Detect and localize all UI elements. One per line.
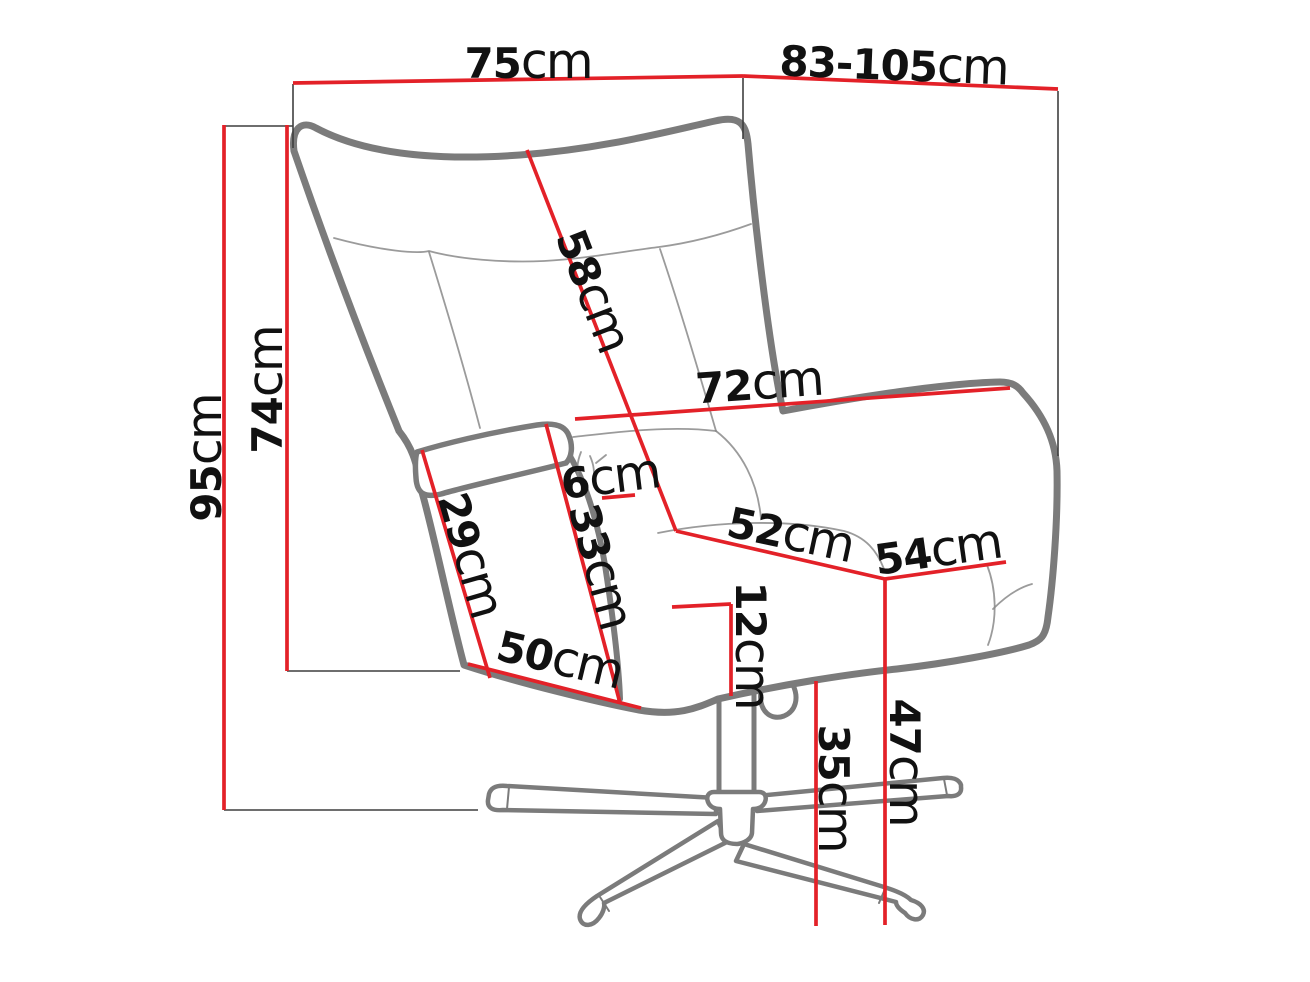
dim-value: 83-105 [779,36,938,91]
label-overall-height: 95cm [176,394,233,521]
base-post-fill [719,694,754,794]
dim-value: 12 [726,581,775,637]
dim-unit: cm [237,326,294,397]
dim-value: 72 [694,361,754,414]
label-back-height: 74cm [237,326,294,453]
armchair-dimension-diagram: 75cm 83-105cm 95cm 74cm 58cm 72cm 6cm 29… [0,0,1310,982]
dim-unit: cm [521,33,592,90]
label-seat-height: 47cm [878,698,935,825]
dim-unit: cm [936,37,1009,97]
dim-unit: cm [724,638,781,709]
dim-unit: cm [176,394,233,465]
label-underseat-height: 35cm [807,724,864,851]
dim-value: 47 [880,698,929,754]
dimension-diagram-page: 75cm 83-105cm 95cm 74cm 58cm 72cm 6cm 29… [0,0,1310,982]
label-depth-range: 83-105cm [778,30,1008,96]
dim-unit: cm [750,350,824,412]
dim-unit: cm [807,781,864,852]
dim-unit: cm [878,755,935,826]
dim-value: 95 [182,465,231,521]
label-seat-thickness: 12cm [724,581,781,708]
label-overall-width: 75cm [464,33,591,90]
dim-value: 35 [809,724,858,780]
dim-value: 74 [243,397,292,453]
dim-unit: cm [585,442,662,507]
dim-unit: cm [927,513,1005,579]
dim-value: 75 [464,39,520,88]
dim-value: 54 [872,528,935,584]
